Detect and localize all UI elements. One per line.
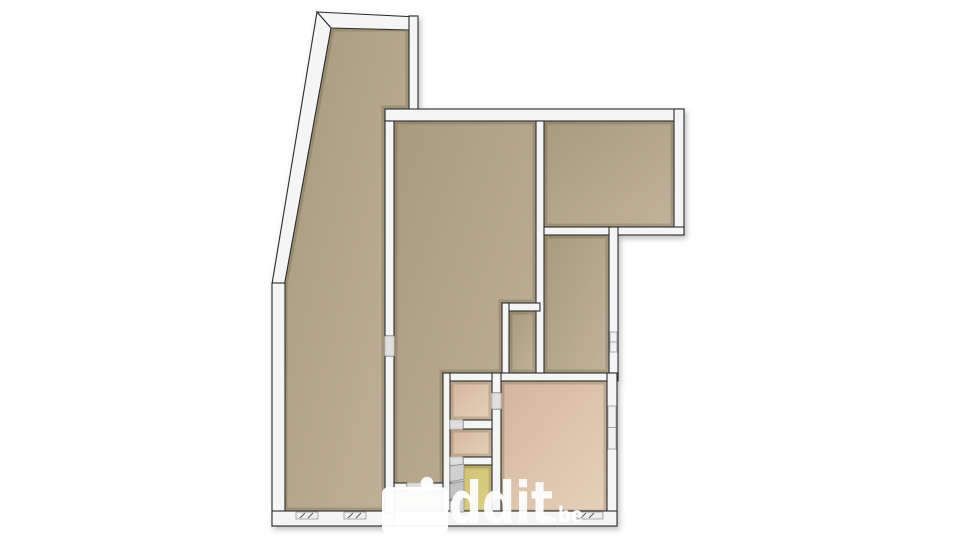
closet-nook-floor (509, 311, 536, 373)
floorplan-image: ddit .be (0, 0, 960, 540)
cluster-right-wall-a (492, 373, 501, 393)
ab-divider-wall (463, 420, 492, 429)
watermark-logo-blob (382, 487, 448, 534)
watermark-i-dot (421, 477, 434, 490)
top-wall-main (385, 109, 684, 121)
door-opening-5 (450, 457, 463, 465)
watermark-text: ddit (449, 469, 553, 537)
watermark-tld: .be (551, 503, 583, 527)
bc-divider-wall (463, 457, 492, 465)
pink-right-wall (607, 373, 617, 526)
floorplan-page: ddit .be (0, 0, 960, 540)
closet-left-wall (502, 303, 509, 381)
door-opening-4 (450, 420, 463, 429)
left-divider-upper (385, 121, 394, 336)
top-right-room-floor (544, 121, 674, 227)
window-h-2 (344, 512, 366, 519)
mid-divider (536, 121, 544, 381)
mid-right-room-floor (544, 235, 609, 373)
south-divider-wall (443, 373, 618, 381)
door-opening-1 (385, 336, 394, 356)
small-room-a-floor (450, 381, 492, 420)
left-wall (272, 283, 285, 526)
floorplan-drawing (272, 12, 684, 526)
left-room-right-upper (409, 16, 418, 121)
small-room-b-floor (450, 429, 492, 457)
window-h-1 (296, 512, 318, 519)
mid-right-right-wall (609, 227, 618, 381)
door-opening-3 (492, 393, 501, 409)
bottom-wall-left (272, 511, 394, 526)
top-left-top-wall (317, 12, 417, 30)
top-right-right-wall (674, 109, 684, 235)
